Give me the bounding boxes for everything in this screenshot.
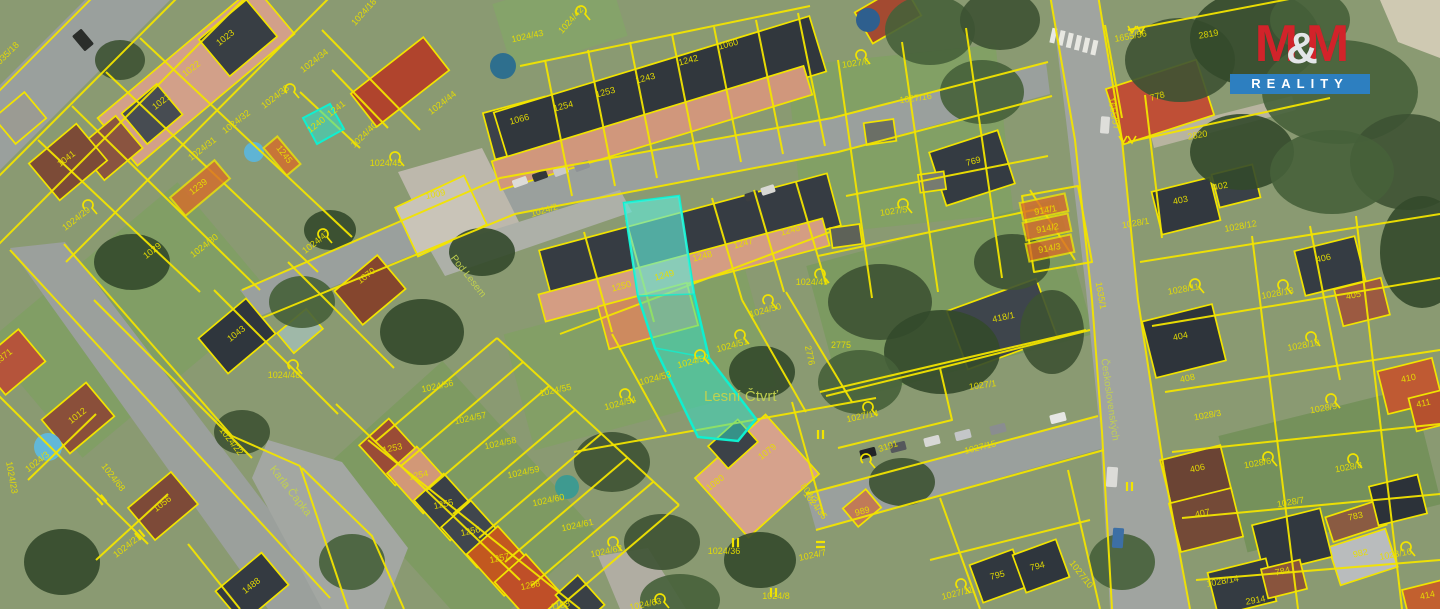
car [1100, 116, 1110, 134]
street-label: Lesní Čtvrť [704, 388, 778, 405]
pool [490, 53, 516, 79]
aerial-cadastral-map[interactable]: 1035/1810231022102110411024/341024/33124… [0, 0, 1440, 609]
tree [1270, 130, 1394, 214]
logo-reality-banner: REALITY [1230, 74, 1370, 94]
parcel-label: 1024/36 [708, 546, 741, 556]
parcel-label: 1024/8 [762, 591, 790, 601]
parcel-label: 1024/45 [370, 158, 403, 168]
parcel-label: 1024/49 [796, 277, 829, 287]
logo-ampersand: & [1286, 24, 1314, 73]
car [1106, 467, 1118, 488]
tree [94, 234, 170, 290]
tree [724, 532, 796, 588]
parcel-label: 1024/48 [268, 370, 301, 380]
tree [24, 529, 100, 595]
logo-mm-text: M&M [1230, 20, 1370, 73]
parcel-label: 2775 [831, 340, 851, 350]
tree [380, 299, 464, 365]
car [1112, 528, 1124, 549]
pool [856, 8, 880, 32]
building-roof [830, 224, 862, 248]
map-screenshot: 1035/1810231022102110411024/341024/33124… [0, 0, 1440, 609]
mm-reality-logo: M&M REALITY [1230, 20, 1370, 94]
tree [95, 40, 145, 80]
